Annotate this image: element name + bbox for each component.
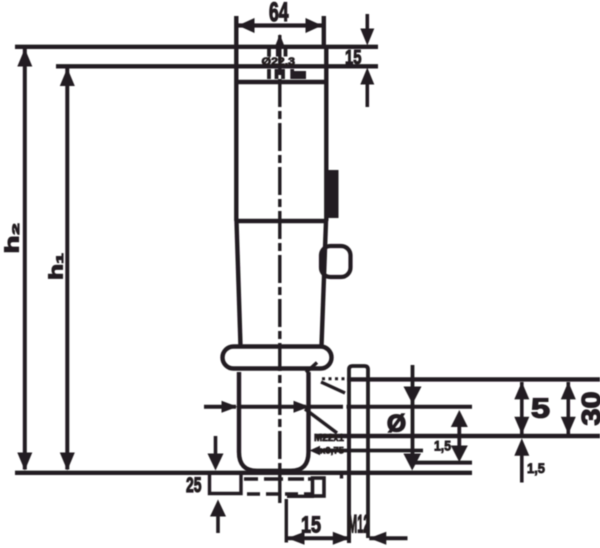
svg-text:h₁: h₁ — [47, 253, 68, 280]
svg-text:x0,75: x0,75 — [320, 446, 345, 457]
svg-text:M22x1: M22x1 — [314, 432, 344, 444]
svg-text:Ø: Ø — [387, 411, 406, 438]
svg-text:30: 30 — [576, 392, 600, 426]
svg-text:15: 15 — [345, 47, 362, 69]
svg-text:15: 15 — [301, 512, 321, 538]
svg-text:Ø22,3: Ø22,3 — [262, 56, 296, 68]
svg-text:M12: M12 — [348, 511, 370, 539]
svg-text:1,5: 1,5 — [434, 438, 451, 454]
svg-text:25: 25 — [186, 473, 202, 497]
svg-text:64: 64 — [269, 0, 289, 27]
svg-text:1,5: 1,5 — [527, 460, 545, 476]
svg-text:5: 5 — [531, 393, 550, 424]
svg-text:h₂: h₂ — [3, 223, 24, 254]
